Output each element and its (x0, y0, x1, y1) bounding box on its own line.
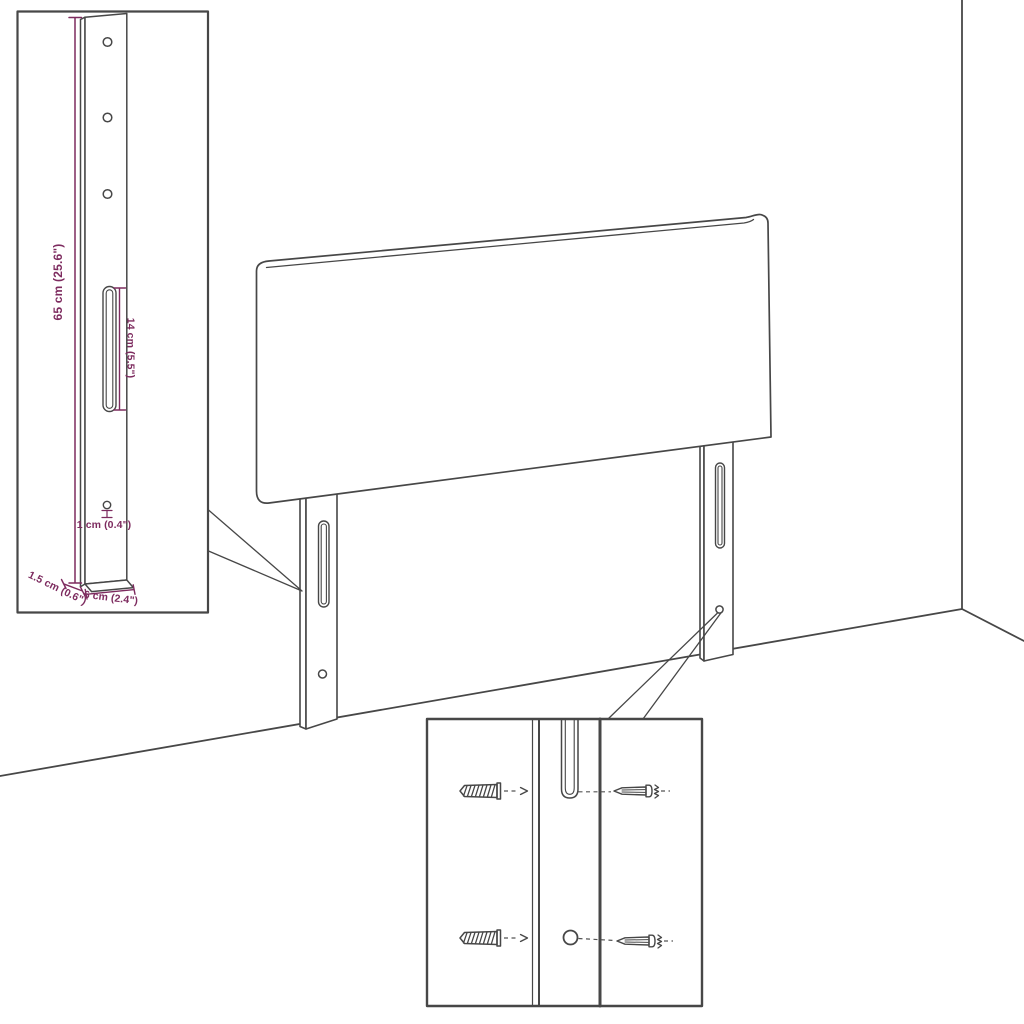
left-leg (300, 475, 337, 729)
headboard-panel (257, 214, 772, 503)
headboard (257, 214, 772, 729)
bracket-callout-lines (209, 510, 303, 591)
floor-edge-right-line (962, 609, 1024, 641)
height-dimension-label: 65 cm (25.6") (51, 244, 65, 321)
hardware-detail-inset (427, 719, 702, 1006)
slot-dimension-label: 14 cm (5.5") (125, 318, 137, 378)
hardware-inset-frame (427, 719, 702, 1006)
right-leg (700, 435, 733, 661)
left-leg-side-face (300, 475, 306, 729)
headboard-dimension-diagram: 65 cm (25.6") 14 cm (5.5") 1 cm (0.4") 1… (0, 0, 1024, 1024)
hole-dimension-label: 1 cm (0.4") (77, 519, 132, 531)
bracket-detail-inset: 65 cm (25.6") 14 cm (5.5") 1 cm (0.4") 1… (18, 12, 209, 613)
